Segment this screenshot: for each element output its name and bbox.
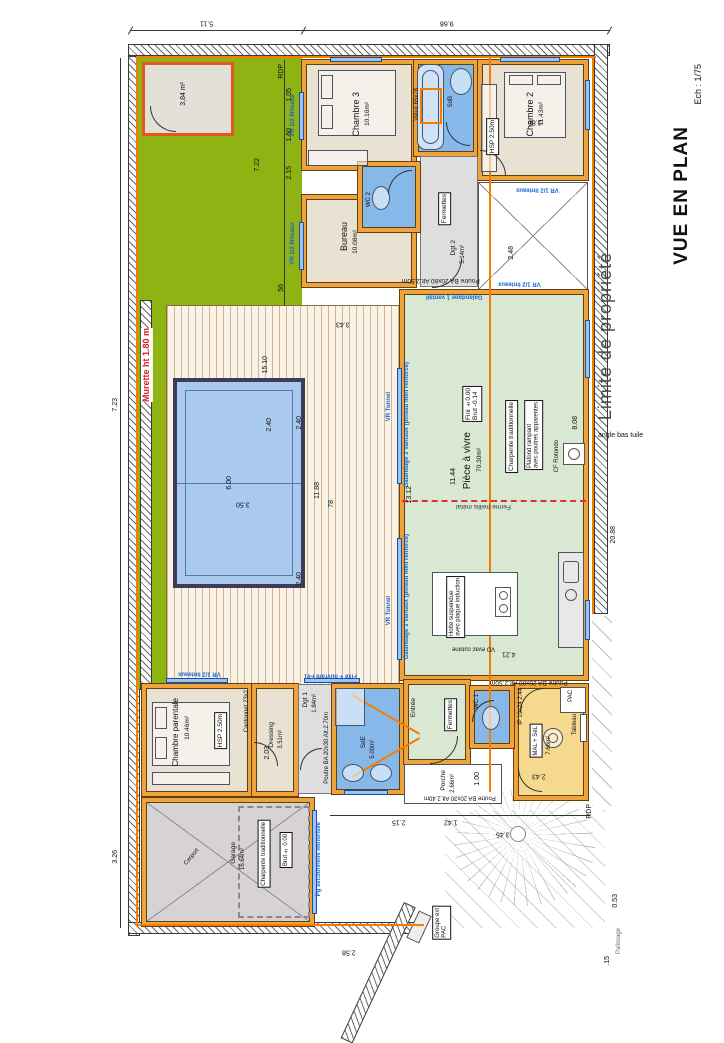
palissage-label: Palissage xyxy=(616,928,623,954)
sink-sdb xyxy=(450,68,472,95)
ferme-treillis-line xyxy=(402,500,586,502)
dim-south-1: 2.15 xyxy=(392,818,406,826)
dim-east-4: .15 xyxy=(604,956,612,966)
window-sde xyxy=(344,790,388,795)
bureau-area: 10.08m² xyxy=(352,230,359,254)
carport-dashed xyxy=(238,806,310,918)
dressing-area: 3.51m² xyxy=(278,730,285,749)
shower-sde xyxy=(335,688,365,726)
murette-label: Murette ht 1.80 m xyxy=(141,328,153,402)
window-living-east-1 xyxy=(585,320,590,378)
dim-deck-3: 2.40 xyxy=(296,416,304,430)
pillow xyxy=(537,75,561,85)
island-label-line1: Hotte suspendue xyxy=(449,578,456,636)
vasque-2 xyxy=(370,764,392,782)
limite-propriete-label: Limite de propriété xyxy=(596,252,616,420)
dim-line-left xyxy=(120,58,121,928)
vr12-d-label: VR 1/2 linteaux xyxy=(498,280,541,287)
vasque-1 xyxy=(342,764,364,782)
roof-line-left xyxy=(136,56,138,926)
rdp-top-label: RDP xyxy=(278,64,286,79)
window-chambre3-west-1 xyxy=(299,92,304,140)
dim-garden-2: 2.40 xyxy=(266,418,274,432)
hob-burner xyxy=(499,591,508,600)
entree-label: Entrée xyxy=(410,698,417,717)
dim-south-2: 1.42 xyxy=(444,818,458,826)
window-dgt1-band xyxy=(304,678,360,683)
dim-deck-1: 15.10 xyxy=(262,356,270,374)
dim-line-top xyxy=(130,30,610,31)
galandage3-b-label: Galandage 3 Vantaux (poteau mini renforc… xyxy=(404,534,411,659)
window-galandage-b xyxy=(397,538,402,660)
dim-east-3: 0.53 xyxy=(612,894,620,908)
kitchen-counter-east xyxy=(558,552,584,648)
dim-top-2: 9.68 xyxy=(440,19,454,27)
island-label: Hotte suspendue avec plaque induction xyxy=(446,576,465,638)
chambre2-label: Chambre 2 xyxy=(526,92,536,137)
window-living-east-2 xyxy=(585,600,590,640)
pillow xyxy=(155,737,167,759)
roof-line-bottom xyxy=(136,924,424,926)
level-brut: Brut -0.14 xyxy=(472,388,479,420)
sun-circle xyxy=(510,826,526,842)
garage-label: Garage xyxy=(230,842,237,864)
plafond-box: Plafond rampant avec poutres apparentes xyxy=(524,400,543,470)
dgt1-label: Dgt 1 xyxy=(302,692,309,708)
chambre3-label: Chambre 3 xyxy=(352,92,362,137)
dim-garden-1: 7.22 xyxy=(254,158,262,172)
dim-tick-top-3 xyxy=(607,26,612,34)
dim-line-south xyxy=(330,815,590,816)
pillow xyxy=(321,75,333,99)
stove-box xyxy=(563,443,585,465)
chambre3-area: 10.16m² xyxy=(364,102,371,126)
poutre-north-label: Poutre BA 20x80 Alt.2.50m xyxy=(402,277,480,284)
dim-deck-2: 11.88 xyxy=(314,482,322,499)
fermettes-north: Fermettes xyxy=(438,192,451,225)
parentale-area: 10.46m² xyxy=(184,716,191,740)
velux-box xyxy=(420,88,442,124)
window-chambre3-north xyxy=(330,57,382,62)
dim-bottom: 2.58 xyxy=(342,948,356,956)
fixe-label: Fixe + ouvrant Fe1 xyxy=(304,672,357,679)
abri-jardin xyxy=(142,62,234,136)
galandage3-a-label: Galandage 3 Vantaux (poteau mini renforc… xyxy=(404,362,411,487)
closet-chambre3 xyxy=(308,150,368,166)
window-galandage-a xyxy=(397,368,402,484)
dim-left-1: 7.23 xyxy=(112,398,120,412)
dgt1-area: 1.84m² xyxy=(312,694,319,713)
pool-mid-line xyxy=(177,483,301,484)
dim-deck-top: 3.43 xyxy=(336,320,350,328)
dim-dressing: 2.03 xyxy=(264,746,272,760)
bench-parentale xyxy=(152,772,230,785)
dim-facade-4: 56 xyxy=(278,284,286,292)
level-fini: Fini ±0.00 xyxy=(465,388,472,420)
ip-label: IP 19x24 2.44 xyxy=(518,688,525,725)
pool xyxy=(173,378,305,588)
dim-top-1: 5.11 xyxy=(200,19,213,27)
dim-terrace: 2.48 xyxy=(508,246,516,260)
pillow xyxy=(509,75,533,85)
window-chambre2-east xyxy=(585,80,590,130)
dim-left-2: 3.26 xyxy=(112,850,120,864)
dim-south-3: 3.45 xyxy=(496,830,510,838)
hob xyxy=(495,587,511,617)
pac-label: PAC xyxy=(568,690,575,702)
sde-label: SdE xyxy=(360,736,367,748)
dim-facade-2: 1.60 xyxy=(286,128,294,142)
evac-label: VD évac cuisine xyxy=(452,645,495,652)
vr12-e-label: VR 1/2 linteaux xyxy=(178,670,221,677)
groupe-pac-line2: PAC xyxy=(442,908,449,938)
dgt2-area: 5.14m² xyxy=(460,245,467,264)
dim-living-1: 13.12 xyxy=(406,486,414,504)
rdp-bottom-label: RDP xyxy=(586,804,594,819)
page-title: VUE EN PLAN xyxy=(672,126,693,265)
roof-line-right xyxy=(592,56,594,614)
dim-deck-5: 78 xyxy=(328,500,336,508)
poutre-porche-label: Poutre BA 20x30 Alt.2.40m xyxy=(424,794,496,801)
porche-area: 2.66m² xyxy=(450,774,457,793)
dim-chambre2: 3.86 xyxy=(528,118,542,126)
wc2-label: WC 2 xyxy=(366,192,373,207)
levels-box: Fini ±0.00 Brut -0.14 xyxy=(462,386,482,422)
dim-east-1: 8.08 xyxy=(572,416,580,430)
cantonnet-label: Cantonnet 23x2 xyxy=(244,690,251,732)
terrain-hatch-east xyxy=(592,616,612,806)
wc1-label: WC 1 xyxy=(474,694,481,709)
stove-circle xyxy=(568,448,580,460)
groupe-pac-line1: Groupe ext xyxy=(435,908,442,938)
tableau-label: Tableau xyxy=(572,714,579,735)
pillow xyxy=(321,105,333,129)
mal-label: MAL + SèL xyxy=(530,724,543,758)
sun-sketch xyxy=(455,788,595,906)
poutre-chambre-label: Poutre BA 20x30 Alt.2.70m xyxy=(324,712,331,784)
plafond-line1: Plafond rampant xyxy=(527,402,534,468)
floor-plan-page: { "title": { "name": "VUE EN PLAN", "sca… xyxy=(0,0,724,1024)
dim-living-2: 11.44 xyxy=(450,468,458,485)
pg-label: Pg sectionnelle motorisée xyxy=(316,822,323,896)
abri-area-label: 3,84 m² xyxy=(180,82,188,106)
groupe-pac-box: Groupe ext PAC xyxy=(432,906,451,940)
charpente-living: Charpente traditionnelle xyxy=(505,400,518,473)
dim-porche: 1.00 xyxy=(474,772,482,786)
kitchen-sink-bowl xyxy=(565,589,577,601)
cellier-area: 7.66m² xyxy=(546,736,553,755)
piece-a-vivre-label: Pièce à vivre xyxy=(462,432,473,489)
sdb-label: SdB xyxy=(448,96,455,107)
poele-label: CF Rotondo xyxy=(554,440,561,472)
parentale-hsp: HSP 2.50m xyxy=(214,712,227,749)
garage-charpente: Charpente traditionnelle xyxy=(258,820,271,888)
vr12-b-label: VR 1/2 linteaux xyxy=(290,222,297,265)
window-chambre2-north xyxy=(500,57,560,62)
window-bureau-west xyxy=(299,222,304,270)
dim-living-3: 4.21 xyxy=(502,650,516,658)
bureau-label: Bureau xyxy=(340,222,350,251)
dim-cellier: 2.43 xyxy=(532,772,546,780)
galandage1-label: Galandage 1 vantail xyxy=(426,293,482,300)
vr-tunnel-b-label: VR Tunnel xyxy=(386,596,393,625)
kitchen-island xyxy=(432,572,518,636)
piece-a-vivre-area: 70.30m² xyxy=(476,448,483,472)
dim-deck-4: 2.40 xyxy=(296,572,304,586)
dressing-label: Dressing xyxy=(268,722,275,748)
porche-label: Porche xyxy=(440,770,447,791)
window-parentale xyxy=(166,678,228,683)
terrace-east xyxy=(478,182,588,290)
tableau-unit xyxy=(580,714,587,742)
pillow xyxy=(155,707,167,729)
dgt2-label: Dgt 2 xyxy=(450,240,457,256)
plafond-line2: avec poutres apparentes xyxy=(534,402,541,468)
parentale-label: Chambre parentale xyxy=(172,698,181,766)
kitchen-sink xyxy=(563,561,579,583)
scale-label: Ech : 1/75 xyxy=(694,64,704,105)
ferme-treillis-label: Ferme treillis métal xyxy=(456,503,511,510)
dim-facade-1: 1.05 xyxy=(286,88,294,102)
dim-facade-3: 2.15 xyxy=(286,166,294,180)
sde-area: 5.00m² xyxy=(370,740,377,759)
vr12-c-label: VR 1/2 linteaux xyxy=(516,186,559,193)
dim-line-facade xyxy=(284,60,285,306)
angle-bas-tuile-label: angle bas tuile xyxy=(598,432,643,440)
garage-brut: Brut ± 0.00 xyxy=(280,832,293,868)
island-label-line2: avec plaque induction xyxy=(456,578,463,636)
dim-pool-w: 3.50 xyxy=(236,500,250,508)
garage-area: 16.64m² xyxy=(240,848,247,870)
dim-pool-l: 6.00 xyxy=(226,476,234,490)
poutre-south-label: Poutre BA 20x80 Alt.2.50m xyxy=(490,679,568,686)
vr-tunnel-a-label: VR Tunnel xyxy=(386,392,393,421)
velux-label: Velux 65x78 xyxy=(414,88,421,121)
boundary-hatch-top xyxy=(128,44,610,56)
hob-burner xyxy=(499,604,508,613)
dim-east-2: 20.88 xyxy=(610,526,618,544)
fermettes-south: Fermettes xyxy=(444,698,457,731)
chambre2-hsp: HSP 2.50m xyxy=(486,118,499,155)
